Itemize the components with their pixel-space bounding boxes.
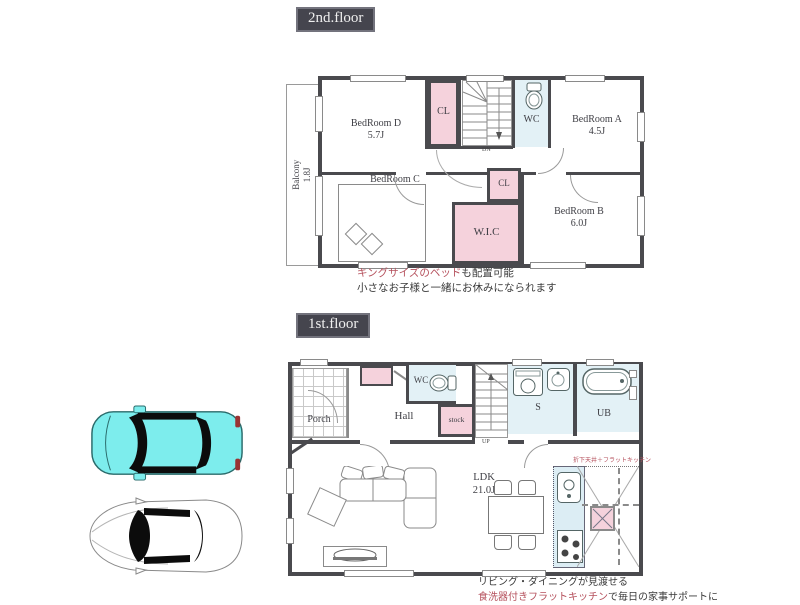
dining-table-icon xyxy=(488,496,544,534)
stock-label: stock xyxy=(438,415,475,424)
window xyxy=(344,570,414,577)
bath-fixture-icon xyxy=(629,370,637,378)
refrigerator-placement-icon xyxy=(590,506,615,531)
vanity-sink-icon xyxy=(547,368,570,395)
wall xyxy=(508,440,524,444)
sanitary-label: S xyxy=(526,402,550,414)
floor1-caption: リビング・ダイニングが見渡せる 食洗器付きフラットキッチンで毎日の家事サポートに xyxy=(478,576,718,605)
hall-label: Hall xyxy=(382,410,426,423)
window xyxy=(315,176,323,236)
window xyxy=(565,75,605,82)
bath-fixture-icon xyxy=(629,386,637,400)
window xyxy=(466,75,504,82)
closet-cl-top-label: CL xyxy=(428,106,459,118)
bedroom-d-label: BedRoom D 5.7J xyxy=(331,118,421,142)
floor-plan-1f: Porch Hall WC stock xyxy=(286,360,646,578)
floor-tag-1st: 1st.floor xyxy=(296,313,370,338)
entry-step-line xyxy=(347,368,349,438)
floor-plan-2f: Balcony 1.8J CL DN xyxy=(286,76,644,272)
pantry-dashed-line xyxy=(618,468,620,565)
window xyxy=(286,468,294,494)
dining-chair-icon xyxy=(494,480,512,495)
window xyxy=(637,196,645,236)
floor1-caption-highlight: 食洗器付きフラットキッチン xyxy=(478,592,608,603)
wall xyxy=(548,440,643,444)
window xyxy=(350,75,406,82)
stairs-up-label: UP xyxy=(482,439,490,445)
car-top-view-cyan-icon xyxy=(88,404,246,486)
tv-board-icon xyxy=(323,546,387,571)
car-top-view-white-icon xyxy=(84,492,246,584)
bath-label: UB xyxy=(586,408,622,420)
toilet-icon-2f xyxy=(522,82,546,110)
window xyxy=(286,518,294,544)
dining-chair-icon xyxy=(518,535,536,550)
closet-cl-mid-label: CL xyxy=(487,178,521,189)
wall xyxy=(288,440,360,444)
wall xyxy=(390,440,475,444)
wic-label: W.I.C xyxy=(452,226,521,239)
stairs-dn-label: DN xyxy=(482,147,491,153)
floor2-caption-highlight: キングサイズのベッド xyxy=(357,267,461,279)
stairs-down-icon xyxy=(462,80,512,146)
bedroom-a-label: BedRoom A 4.5J xyxy=(554,114,640,138)
floor2-caption: キングサイズのベッドも配置可能 小さなお子様と一緒にお休みになられます xyxy=(357,266,557,296)
window xyxy=(315,96,323,132)
kitchen-note: 折下天井＋フラットキッチン xyxy=(573,455,651,464)
window xyxy=(300,359,328,366)
shoe-cabinet xyxy=(360,366,393,386)
dining-chair-icon xyxy=(494,535,512,550)
window xyxy=(586,359,614,366)
stairs-up-icon xyxy=(475,364,508,438)
wc-2f-label: WC xyxy=(515,114,548,126)
floor-tag-2nd: 2nd.floor xyxy=(296,7,375,32)
toilet-icon-1f xyxy=(429,371,457,395)
balcony-label: Balcony 1.8J xyxy=(291,130,313,220)
dining-chair-icon xyxy=(518,480,536,495)
wall xyxy=(521,172,524,264)
window xyxy=(637,112,645,142)
washing-machine-icon xyxy=(513,368,543,400)
sofa-icon xyxy=(338,466,438,534)
wall xyxy=(548,80,551,148)
dotted-ceiling-line xyxy=(585,466,639,467)
bedroom-b-label: BedRoom B 6.0J xyxy=(534,206,624,230)
bathtub-icon xyxy=(582,368,632,399)
window xyxy=(512,359,542,366)
